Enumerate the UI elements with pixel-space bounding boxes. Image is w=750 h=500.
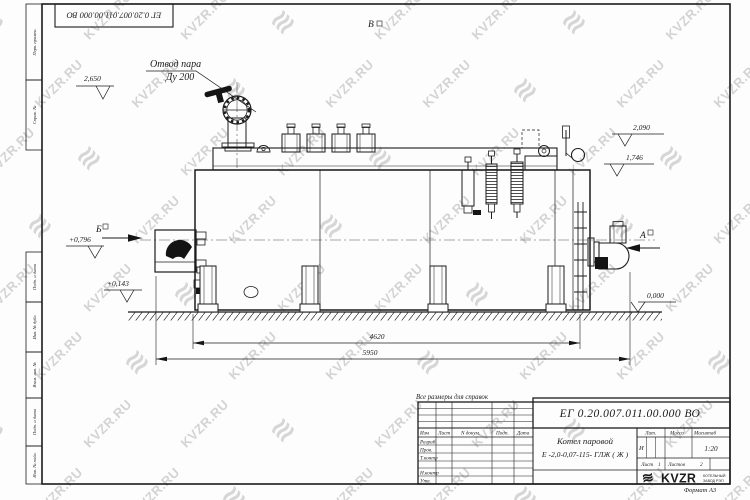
- elev-1746: 1,746: [626, 153, 643, 162]
- margin-label-invpodl: Инв. № подл.: [32, 452, 37, 478]
- product-name-line2: Е -2,0-0,07-115- ГЛЖ ( Ж ): [541, 450, 629, 459]
- listov-label: Листов: [667, 462, 686, 468]
- massa-header: Масса: [669, 431, 684, 437]
- row-prov: Пров.: [419, 448, 432, 454]
- row-utv: Утв.: [420, 479, 431, 485]
- titleblock-right-cells: Лит. Масса Масштаб И 1:20 Лист 1 Листов …: [638, 430, 718, 469]
- row-tkontr: Т.контр: [420, 456, 438, 462]
- list-label: Лист: [640, 462, 653, 468]
- margin-label-invdubl: Инв. № дубл.: [32, 314, 37, 340]
- margin-label-vzam: Взам. инв. №: [32, 362, 37, 388]
- logo-wordmark: KVZR: [661, 472, 696, 486]
- view-b-label: Б: [95, 225, 102, 235]
- row-nkontr: Н.контр: [419, 471, 439, 477]
- margin-label-podp2: Подп. и дата: [32, 408, 37, 436]
- th-izm: Изм: [419, 431, 430, 437]
- lit-header: Лит.: [644, 431, 656, 437]
- view-v-label: В: [368, 20, 374, 30]
- elev-0143: +0,143: [107, 279, 129, 288]
- top-deck: [213, 148, 557, 170]
- steam-outlet-valve: [204, 85, 254, 151]
- reference-note: Все размеры для справок: [416, 394, 489, 401]
- deck-lug: [257, 146, 270, 152]
- dim-5950-value: 5950: [363, 348, 378, 357]
- elevation-marks: [66, 86, 676, 312]
- elev-2090: 2,090: [633, 123, 650, 132]
- rear-ladder: [574, 202, 587, 310]
- elevation-values: 2,650 +0,796 +0,143 2,090 1,746 0,000: [69, 74, 664, 300]
- logo-sub1: КОТЕЛЬНЫЙ: [703, 474, 726, 478]
- dim-4620-value: 4620: [370, 332, 385, 341]
- th-data: Дата: [516, 431, 530, 437]
- list-value: 1: [658, 462, 661, 468]
- margin-column-labels: Перв. примен. Справ. № Подп. и дата Инв.…: [32, 28, 37, 478]
- listov-value: 2: [700, 462, 703, 468]
- logo-sub2: ЗАВОД РЭП: [703, 479, 724, 483]
- row-razrab: Разраб.: [419, 439, 437, 446]
- level-gauges: [462, 149, 523, 219]
- lit-value: И: [638, 445, 644, 452]
- elev-0796: +0,796: [69, 235, 91, 244]
- th-ndokum: N докум.: [460, 430, 480, 437]
- corner-stamp-designation: ЕГ 0.20.007.011.00.000 ВО: [67, 11, 163, 21]
- rear-burner-motor: [588, 222, 629, 270]
- titleblock-name-box: Котел паровой Е -2,0-0,07-115- ГЛЖ ( Ж ): [541, 436, 629, 459]
- steam-callout-line2: Ду 200: [165, 72, 194, 83]
- fan-scroll-icon: [166, 240, 192, 259]
- elev-0000: 0,000: [647, 291, 664, 300]
- th-list: Лист: [437, 431, 450, 437]
- th-podp: Подп.: [495, 430, 509, 437]
- steam-callout-line1: Отвод пара: [150, 59, 201, 70]
- spring-icon: ≋: [641, 469, 655, 486]
- view-a-label: А: [639, 231, 646, 241]
- drawing-sheet: ≋KVZR.RUKVZR.RU≋KVZR.RUKVZR.RU≋KVZR.RUKV…: [0, 0, 750, 500]
- masshtab-value: 1:20: [704, 445, 718, 453]
- format-note: Формат А3: [684, 487, 717, 494]
- elev-2650: 2,650: [84, 74, 101, 83]
- titleblock-designation: ЕГ 0.20.007.011.00.000 ВО: [559, 408, 701, 420]
- margin-label-podp1: Подп. и дата: [32, 263, 37, 291]
- view-markers: Б А В: [95, 20, 660, 252]
- masshtab-header: Масштаб: [693, 430, 716, 437]
- margin-label-sprav: Справ. №: [32, 105, 37, 124]
- burner-assembly: [155, 230, 206, 294]
- boiler-drawing-canvas: Перв. примен. Справ. № Подп. и дата Инв.…: [0, 0, 750, 500]
- support-legs: [198, 266, 566, 312]
- product-name-line1: Котел паровой: [556, 436, 614, 446]
- steam-outlet-callout: Отвод пара Ду 200: [146, 59, 256, 112]
- ground-line: [128, 312, 662, 321]
- manhole: [244, 287, 258, 298]
- margin-label-perv: Перв. примен.: [32, 28, 37, 56]
